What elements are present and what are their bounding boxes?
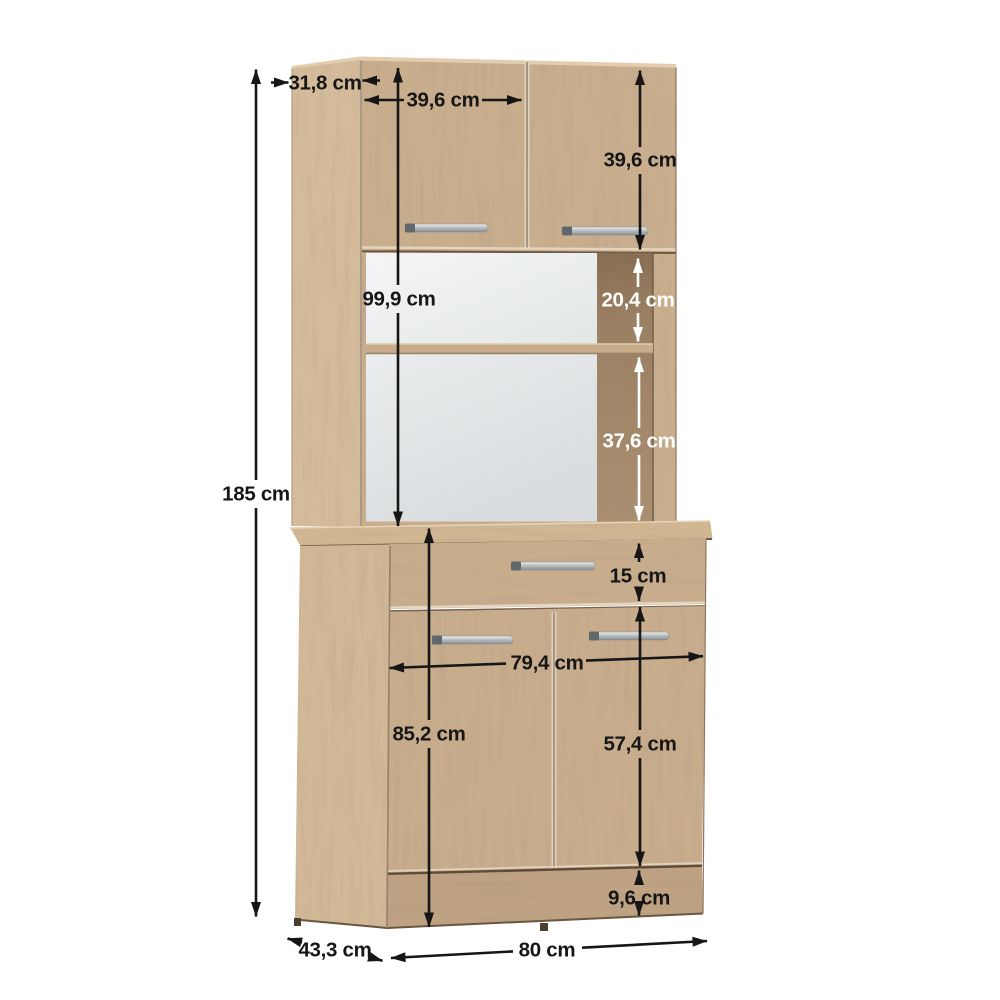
dim-label-niche-upper-height: 20,4 cm: [601, 289, 674, 312]
hutch-left-door-handle: [405, 224, 488, 233]
hutch-right-door-handle: [562, 227, 648, 236]
cabinet: [288, 54, 716, 932]
dim-label-hutch-door-height: 39,6 cm: [603, 149, 676, 172]
base-foot-left: [294, 918, 301, 926]
dim-label-base-door-height: 57,4 cm: [603, 733, 676, 756]
dim-label-base-height: 85,2 cm: [392, 723, 465, 746]
dim-label-hutch-height: 99,9 cm: [362, 288, 435, 311]
dim-label-base-inner-width: 79,4 cm: [510, 652, 583, 675]
drawer-handle: [511, 562, 595, 571]
cabinet-diagram-canvas: 185 cm 31,8 cm 39,6 cm 39,6 cm 99,9 cm 2…: [0, 0, 1000, 1000]
dim-label-base-depth: 43,3 cm: [298, 939, 371, 962]
base-right-door-handle: [589, 632, 669, 641]
niche-shelf: [366, 344, 653, 353]
dim-label-plinth-height: 9,6 cm: [608, 887, 670, 910]
dim-label-niche-lower-height: 37,6 cm: [602, 430, 675, 453]
dim-label-total-width: 80 cm: [519, 939, 576, 962]
dim-total-width: 80 cm: [391, 939, 707, 962]
dim-label-drawer-height: 15 cm: [610, 565, 667, 588]
furniture-dimension-diagram: 185 cm 31,8 cm 39,6 cm 39,6 cm 99,9 cm 2…: [0, 0, 1000, 1000]
dim-label-hutch-depth: 31,8 cm: [288, 72, 361, 95]
dim-label-total-height: 185 cm: [222, 483, 290, 506]
dim-total-height: 185 cm: [222, 70, 290, 917]
base-left-panel: [293, 542, 393, 932]
dim-label-hutch-door-width: 39,6 cm: [406, 89, 479, 112]
base-foot-center: [540, 923, 548, 931]
hutch-left-panel: [290, 54, 364, 530]
dim-base-depth: 43,3 cm: [288, 939, 383, 962]
base-left-door-handle: [432, 636, 513, 645]
